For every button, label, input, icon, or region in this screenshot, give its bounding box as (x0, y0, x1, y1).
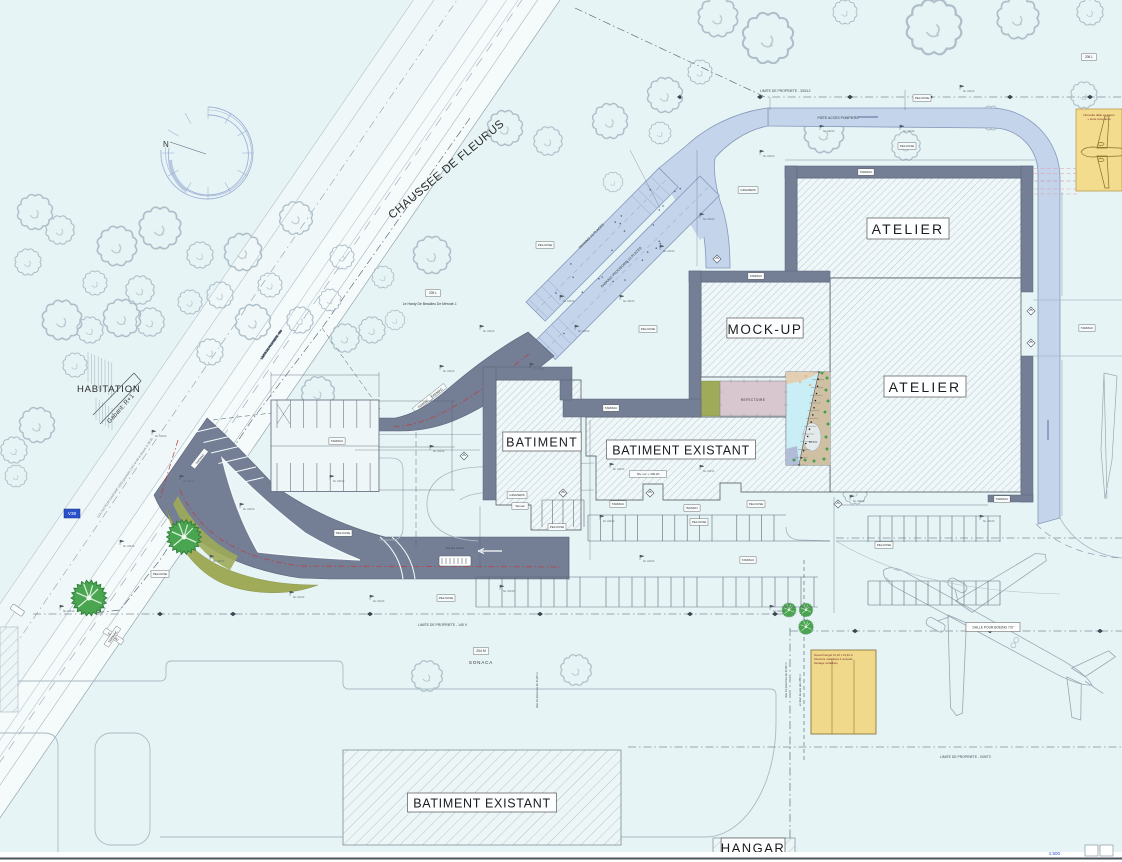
svg-text:TARMAC: TARMAC (860, 170, 873, 174)
svg-text:PELOUSE: PELOUSE (336, 531, 350, 535)
svg-text:Le Hardy De Beaulieu De Mérode: Le Hardy De Beaulieu De Mérode J. (403, 302, 458, 306)
svg-text:LIMITE DE PROPRIETE - 330/L2: LIMITE DE PROPRIETE - 330/L2 (760, 89, 811, 93)
svg-text:No. 100.00: No. 100.00 (623, 301, 635, 303)
svg-text:PATIO: PATIO (809, 440, 818, 444)
svg-text:PELOUSE: PELOUSE (915, 96, 929, 100)
svg-text:No. 100.00: No. 100.00 (533, 369, 545, 371)
svg-text:No. 100.00: No. 100.00 (483, 331, 495, 333)
svg-text:No. 100.00: No. 100.00 (123, 546, 135, 548)
svg-text:No. 100.00: No. 100.00 (213, 561, 225, 563)
svg-text:PELOUSE: PELOUSE (877, 543, 891, 547)
svg-text:bardage métallique: bardage métallique (814, 661, 838, 665)
svg-text:TARMAC: TARMAC (750, 274, 763, 278)
svg-text:No. 100.00: No. 100.00 (643, 561, 655, 563)
svg-text:No. 100.00: No. 100.00 (703, 471, 715, 473)
svg-text:No. 100.00: No. 100.00 (853, 501, 865, 503)
svg-text:No. 100.00: No. 100.00 (243, 509, 255, 511)
svg-text:TARMAC: TARMAC (605, 406, 618, 410)
svg-text:en liser de axe des 350 m: en liser de axe des 350 m (798, 673, 802, 706)
svg-text:GRAVIERS: GRAVIERS (509, 493, 524, 497)
svg-text:No. 100.00: No. 100.00 (183, 481, 195, 483)
svg-text:No. 100.00: No. 100.00 (155, 436, 167, 438)
svg-text:PELOUSE: PELOUSE (749, 502, 763, 506)
svg-text:1:500: 1:500 (1049, 851, 1061, 856)
svg-text:No. 100.00: No. 100.00 (563, 301, 575, 303)
svg-text:BASSIN: BASSIN (686, 506, 697, 510)
svg-text:PELOUSE: PELOUSE (641, 327, 655, 331)
svg-text:No. 100.00: No. 100.00 (613, 469, 625, 471)
svg-text:206 L: 206 L (1085, 55, 1093, 59)
svg-text:No. 100.00: No. 100.00 (333, 481, 345, 483)
svg-text:204 M: 204 M (476, 649, 486, 653)
svg-text:No. 100.00: No. 100.00 (663, 251, 675, 253)
svg-text:BATIMENT: BATIMENT (506, 436, 578, 450)
svg-text:No. 100.00: No. 100.00 (983, 521, 995, 523)
svg-text:DALLE POUR BOEING 737: DALLE POUR BOEING 737 (972, 626, 1013, 630)
svg-text:TARMAC: TARMAC (742, 558, 755, 562)
svg-text:LIMITE DE PROPRIETE - 009/T3: LIMITE DE PROPRIETE - 009/T3 (940, 755, 991, 759)
svg-text:No. 100.00: No. 100.00 (433, 451, 445, 453)
svg-text:TARMAC: TARMAC (1081, 326, 1094, 330)
svg-text:TARMAC: TARMAC (612, 502, 625, 506)
svg-text:BATIMENT EXISTANT: BATIMENT EXISTANT (413, 797, 551, 811)
svg-text:V39: V39 (68, 511, 77, 516)
svg-text:PELOUSE: PELOUSE (439, 596, 453, 600)
svg-text:No. 100.00: No. 100.00 (773, 611, 785, 613)
svg-text:LIMITE DE PROPRIETE - 145 V: LIMITE DE PROPRIETE - 145 V (418, 623, 468, 627)
svg-text:Abri bus couvert: Abri bus couvert (446, 546, 465, 550)
svg-text:GRAVIERS: GRAVIERS (740, 188, 755, 192)
svg-text:No. 100.00: No. 100.00 (578, 331, 590, 333)
svg-text:PELOUSE: PELOUSE (550, 525, 564, 529)
svg-text:BATIMENT EXISTANT: BATIMENT EXISTANT (612, 444, 750, 458)
svg-text:205 L: 205 L (429, 291, 437, 295)
svg-text:N: N (163, 140, 169, 149)
svg-text:MOCK-UP: MOCK-UP (728, 322, 803, 337)
svg-text:No. 100.00: No. 100.00 (763, 156, 775, 158)
svg-text:No. 100.00: No. 100.00 (63, 611, 75, 613)
svg-text:Tarmac: Tarmac (515, 504, 525, 508)
svg-text:No. 100.00: No. 100.00 (443, 371, 455, 373)
svg-text:No. 100.00: No. 100.00 (703, 219, 715, 221)
svg-text:Axe 12 planches de 31,80 m: Axe 12 planches de 31,80 m (784, 662, 788, 698)
svg-text:TARMAC: TARMAC (996, 497, 1009, 501)
svg-text:SONACA: SONACA (469, 660, 493, 665)
svg-text:No. 100.00: No. 100.00 (373, 601, 385, 603)
svg-text:ATELIER: ATELIER (872, 221, 945, 237)
svg-text:No. 100.00: No. 100.00 (503, 591, 515, 593)
svg-text:No. 100.00: No. 100.00 (603, 521, 615, 523)
svg-text:ATELIER: ATELIER (889, 379, 962, 395)
svg-text:No. 100.00: No. 100.00 (903, 131, 915, 133)
svg-text:PISTE ACCES POMPIERS: PISTE ACCES POMPIERS (817, 116, 859, 120)
svg-text:TARMAC: TARMAC (331, 439, 344, 443)
svg-text:PELOUSE: PELOUSE (538, 243, 552, 247)
svg-text:PELOUSE: PELOUSE (692, 520, 706, 524)
svg-text:PELOUSE: PELOUSE (153, 572, 167, 576)
svg-text:+ tente récupérée: + tente récupérée (1087, 117, 1111, 121)
svg-text:No. 100.00: No. 100.00 (823, 131, 835, 133)
svg-text:Niv. rez + 100.20: Niv. rez + 100.20 (637, 472, 660, 476)
svg-text:No. 100.00: No. 100.00 (293, 597, 305, 599)
svg-text:Axe 10 planches de 31,80 m: Axe 10 planches de 31,80 m (535, 672, 539, 708)
svg-text:REFECTOIRE: REFECTOIRE (741, 398, 766, 402)
svg-text:No. 100.00: No. 100.00 (963, 91, 975, 93)
svg-text:PELOUSE: PELOUSE (900, 144, 914, 148)
